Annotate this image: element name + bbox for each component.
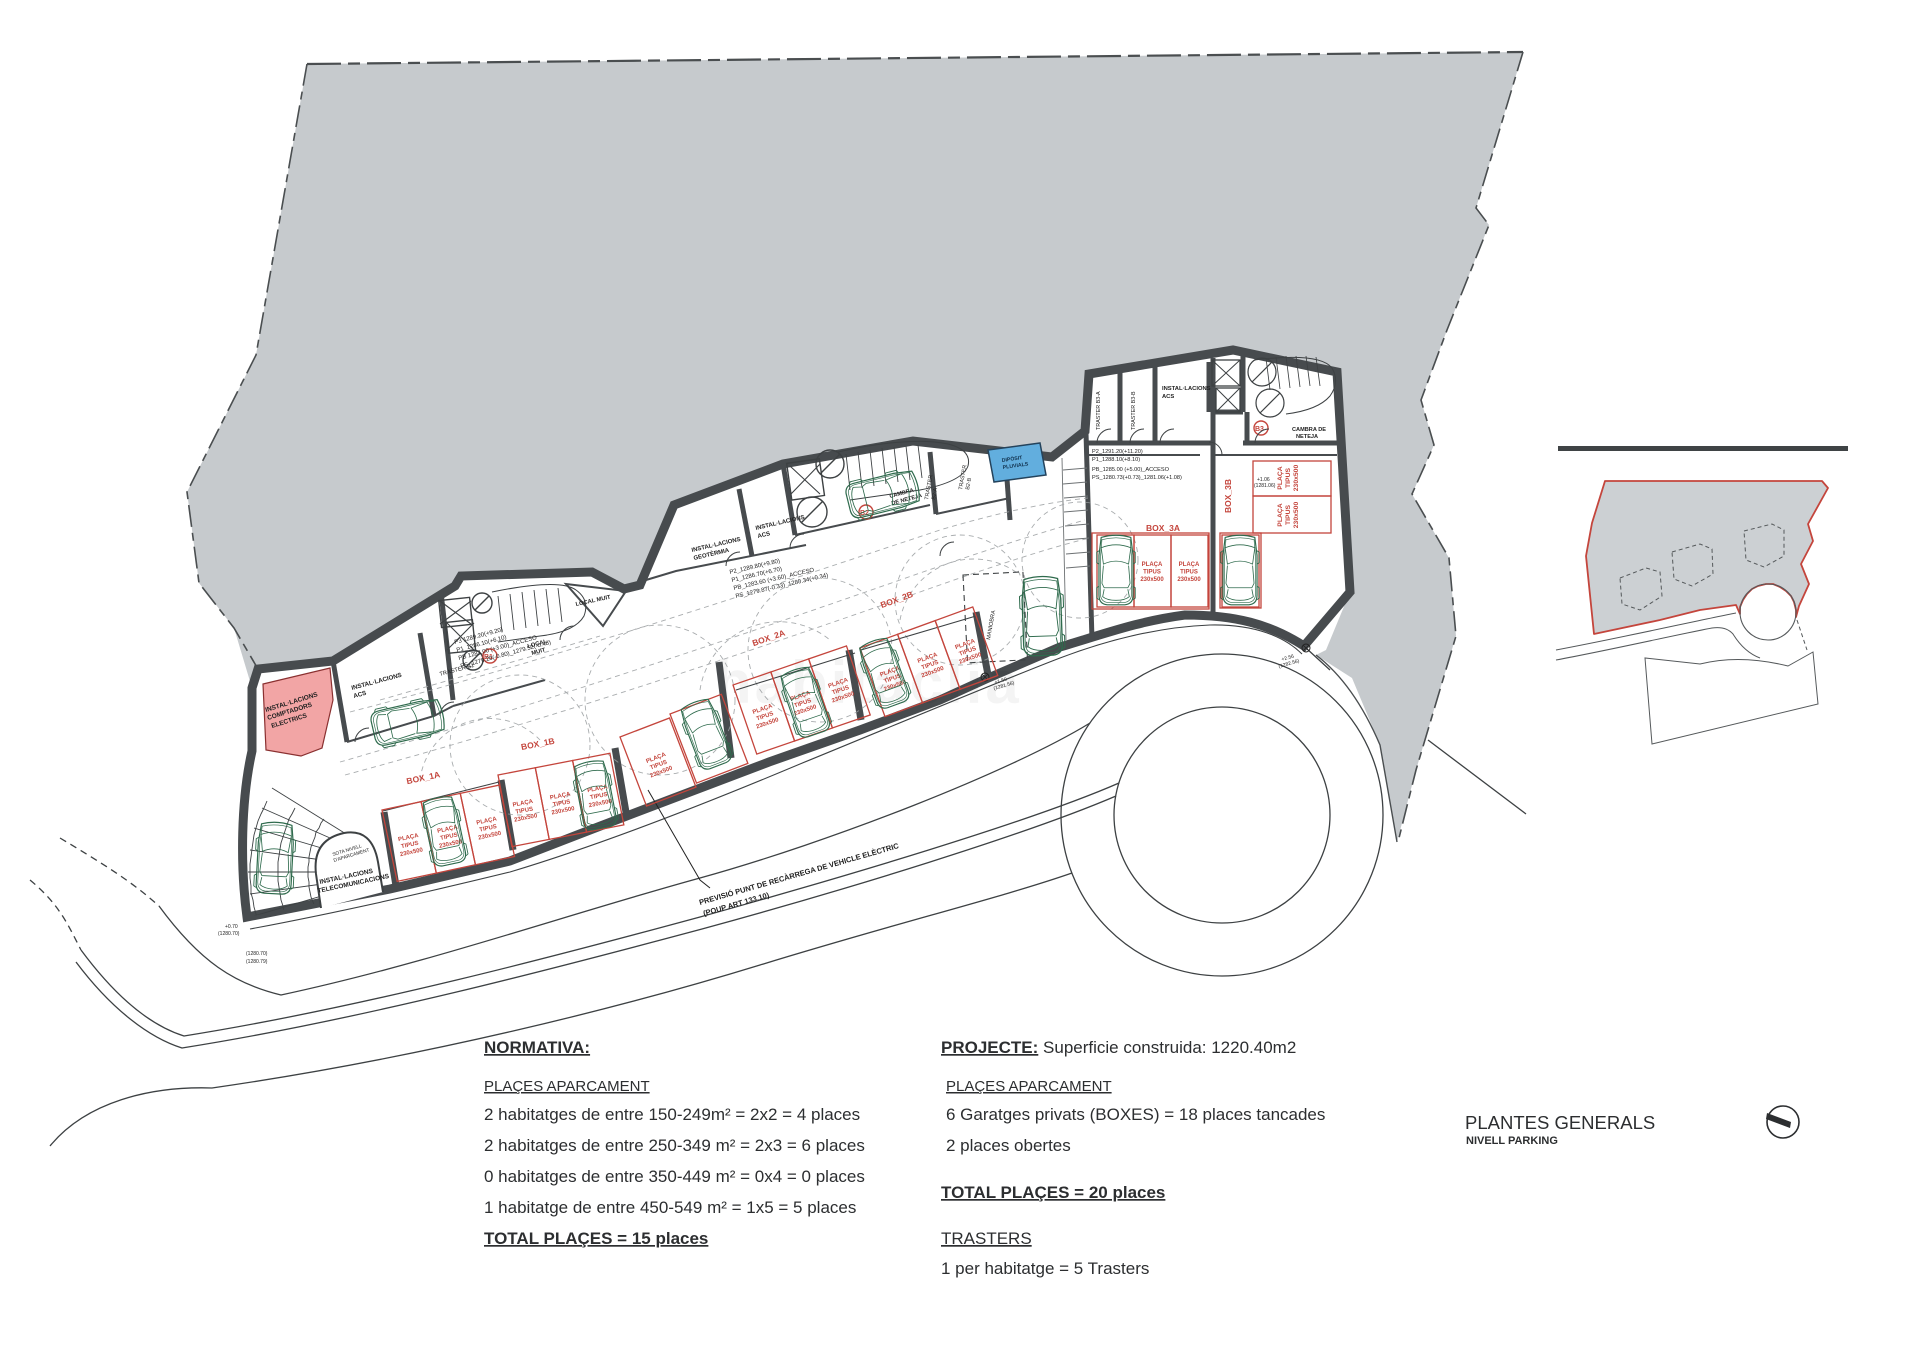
svg-text:NIVELL PARKING: NIVELL PARKING [1466, 1135, 1558, 1147]
svg-text:NETEJA: NETEJA [1296, 434, 1318, 440]
svg-text:PLAÇES APARCAMENT: PLAÇES APARCAMENT [946, 1078, 1112, 1095]
svg-text:2 habitatges de entre 250-349: 2 habitatges de entre 250-349 m² = 2x3 =… [484, 1136, 865, 1155]
svg-text:6 Garatges privats (BOXES) = 1: 6 Garatges privats (BOXES) = 18 places t… [946, 1105, 1325, 1124]
svg-text:PLAÇA: PLAÇA [1277, 466, 1284, 490]
svg-text:PS_1280.73(+0.73)_1281.06(+1.0: PS_1280.73(+0.73)_1281.06(+1.08) [1092, 475, 1182, 481]
svg-text:TIPUS: TIPUS [1285, 468, 1292, 488]
svg-text:PREVISIÓ PUNT DE RECÀRREGA DE: PREVISIÓ PUNT DE RECÀRREGA DE VEHICLE EL… [698, 841, 900, 907]
svg-text:TIPUS: TIPUS [1285, 505, 1292, 525]
svg-text:TRASTERS: TRASTERS [941, 1229, 1032, 1248]
svg-text:230x500: 230x500 [1293, 465, 1300, 492]
svg-text:TOTAL PLAÇES = 15 places: TOTAL PLAÇES = 15 places [484, 1229, 708, 1248]
svg-text:CAMBRA DE: CAMBRA DE [1292, 427, 1326, 433]
svg-text:PLAÇA: PLAÇA [1277, 503, 1284, 527]
svg-text:INSTAL·LACIONS: INSTAL·LACIONS [1162, 386, 1211, 392]
svg-text:PB_1285.00 (+5.00)_ACCESO: PB_1285.00 (+5.00)_ACCESO [1092, 467, 1170, 473]
svg-text:PLAÇES APARCAMENT: PLAÇES APARCAMENT [484, 1078, 650, 1095]
svg-text:(1280.70): (1280.70) [218, 931, 240, 937]
svg-text:2 places obertes: 2 places obertes [946, 1136, 1071, 1155]
svg-text:TOTAL PLAÇES = 20 places: TOTAL PLAÇES = 20 places [941, 1183, 1165, 1202]
svg-text:PLANTES GENERALS: PLANTES GENERALS [1465, 1112, 1655, 1133]
svg-text:P1_1288.10(+8.10): P1_1288.10(+8.10) [1092, 457, 1140, 463]
svg-text:BOX_3A: BOX_3A [1146, 523, 1180, 533]
svg-text:BOX_3B: BOX_3B [1223, 479, 1233, 513]
svg-text:TRASTER B3-B: TRASTER B3-B [1131, 391, 1137, 430]
svg-text:P2_1291.20(+11.20): P2_1291.20(+11.20) [1092, 449, 1143, 455]
svg-text:PROJECTE: Superficie construid: PROJECTE: Superficie construida: 1220.40… [941, 1038, 1296, 1057]
svg-text:NORMATIVA:: NORMATIVA: [484, 1038, 590, 1057]
svg-text:(1280.70): (1280.70) [246, 951, 268, 957]
svg-text:1 habitatge de entre 450-549 m: 1 habitatge de entre 450-549 m² = 1x5 = … [484, 1198, 856, 1217]
svg-text:TRASTER B3-A: TRASTER B3-A [1096, 391, 1102, 430]
svg-text:230x500: 230x500 [1293, 502, 1300, 529]
svg-text:0 habitatges de entre 350-449: 0 habitatges de entre 350-449 m² = 0x4 =… [484, 1167, 865, 1186]
svg-text:1 per habitatge = 5 Trasters: 1 per habitatge = 5 Trasters [941, 1259, 1149, 1278]
svg-text:(1281.06): (1281.06) [1254, 483, 1276, 489]
svg-text:B3: B3 [1255, 426, 1264, 433]
svg-text:ACS: ACS [1162, 394, 1174, 400]
svg-text:+0.70: +0.70 [225, 924, 238, 930]
svg-text:2 habitatges de entre 150-249m: 2 habitatges de entre 150-249m² = 2x2 = … [484, 1105, 860, 1124]
svg-text:(1280.79): (1280.79) [246, 959, 268, 965]
